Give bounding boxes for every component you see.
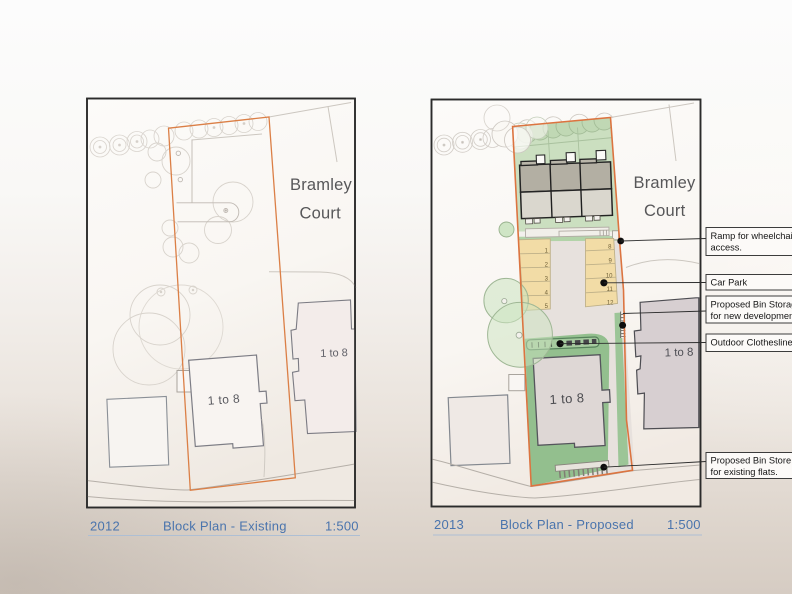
svg-text:11: 11: [607, 287, 614, 293]
svg-text:Ramp for wheelchair: Ramp for wheelchair: [711, 231, 792, 241]
svg-text:2012: 2012: [90, 519, 120, 534]
svg-text:1 to 8: 1 to 8: [207, 391, 240, 407]
svg-text:Outdoor Clothesline: Outdoor Clothesline: [711, 338, 792, 348]
svg-text:Court: Court: [300, 205, 342, 223]
svg-text:2013: 2013: [434, 517, 464, 532]
svg-text:Block Plan - Existing: Block Plan - Existing: [163, 519, 287, 534]
svg-text:12: 12: [607, 301, 614, 307]
svg-text:Block Plan - Proposed: Block Plan - Proposed: [500, 517, 634, 532]
svg-text:Proposed Bin Store: Proposed Bin Store: [711, 456, 792, 466]
svg-text:Car Park: Car Park: [711, 278, 748, 288]
svg-text:10: 10: [606, 274, 613, 280]
svg-text:1 to 8: 1 to 8: [549, 390, 585, 407]
svg-text:1:500: 1:500: [325, 519, 359, 534]
svg-text:Bramley: Bramley: [290, 176, 352, 194]
svg-text:Bramley: Bramley: [634, 174, 696, 192]
svg-text:1 to 8: 1 to 8: [320, 347, 348, 360]
svg-text:access.: access.: [711, 242, 743, 252]
svg-text:1:500: 1:500: [667, 517, 701, 532]
svg-text:for existing flats.: for existing flats.: [711, 467, 778, 477]
svg-text:Court: Court: [644, 202, 686, 220]
svg-text:Proposed Bin Storage: Proposed Bin Storage: [711, 299, 792, 309]
svg-text:1 to 8: 1 to 8: [664, 347, 693, 360]
svg-text:for new development: for new development: [711, 311, 792, 321]
